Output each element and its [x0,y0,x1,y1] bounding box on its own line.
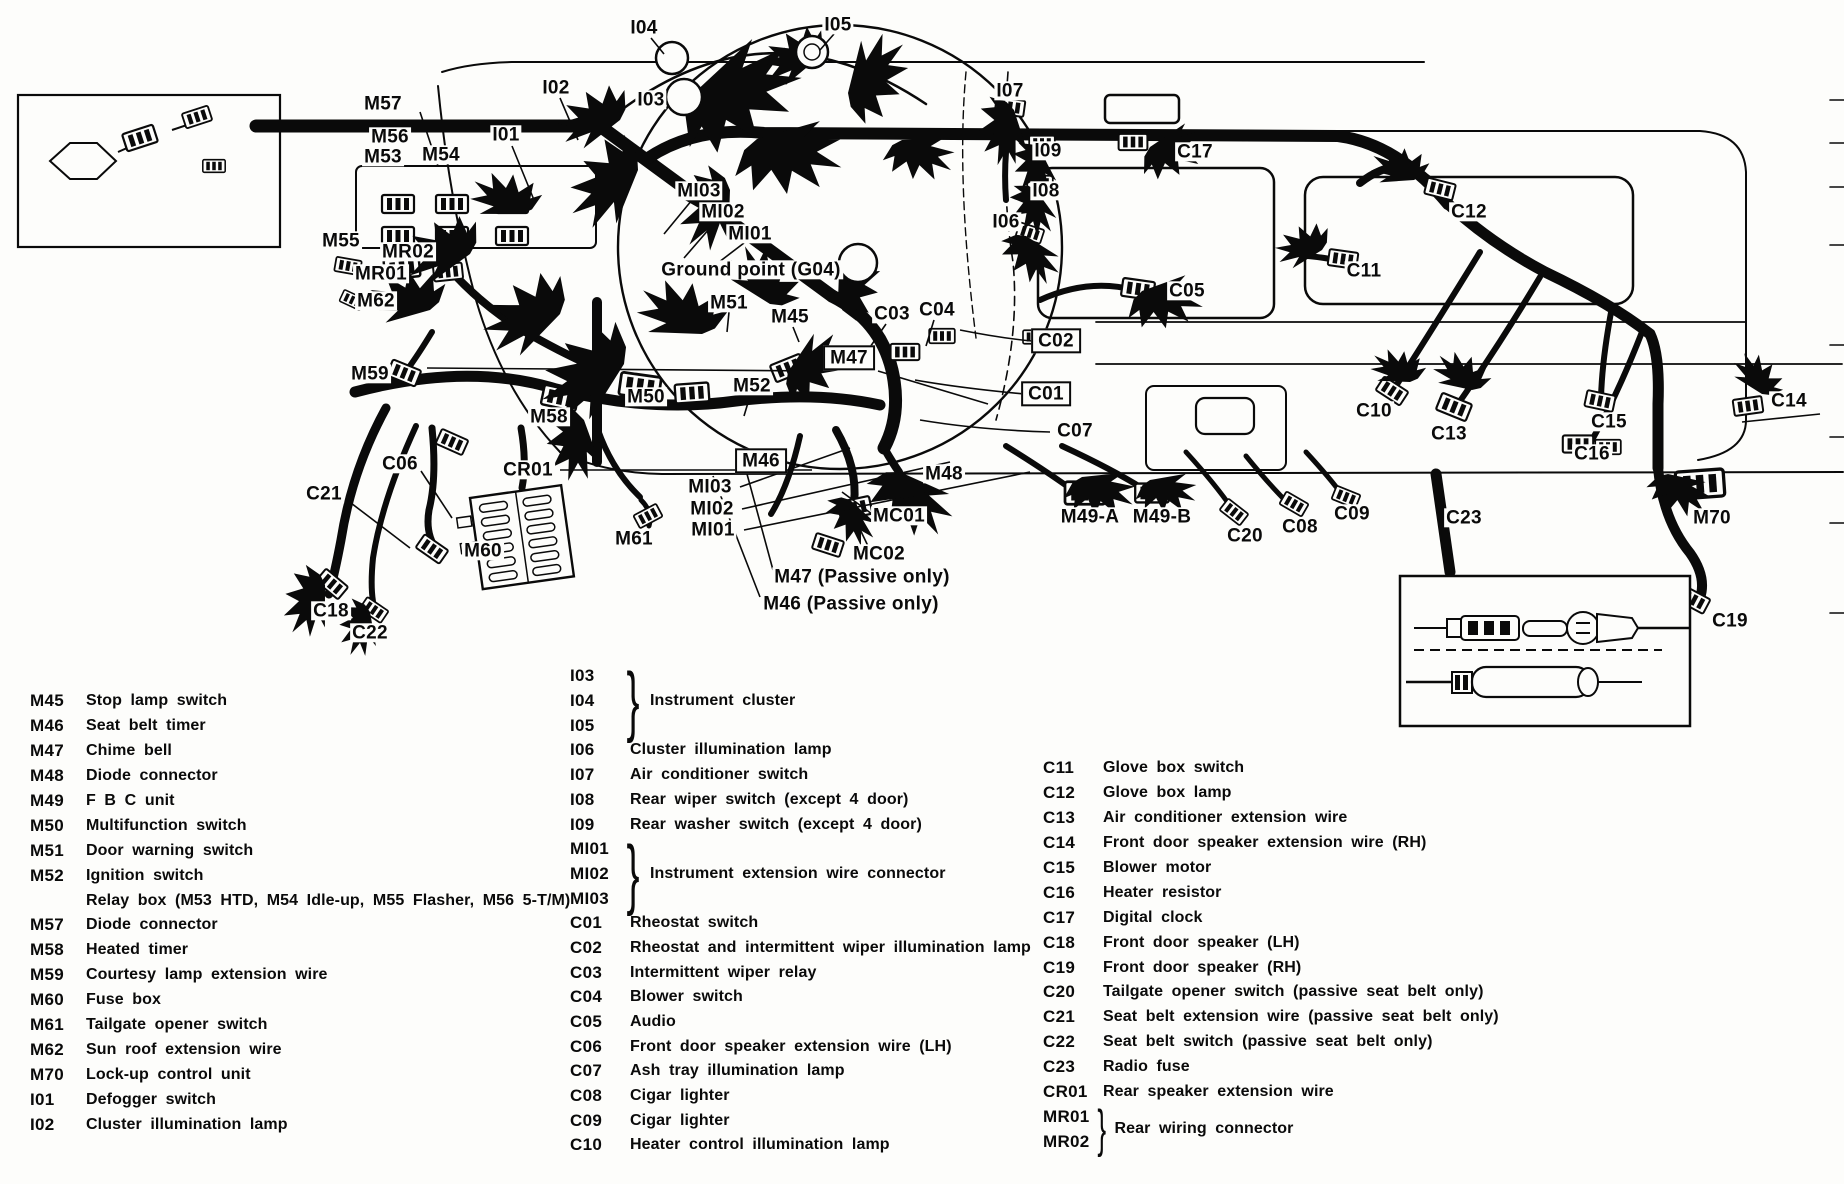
legend-row: C14Front door speaker extension wire (RH… [1043,831,1499,856]
legend-row: M58Heated timer [30,938,570,963]
diagram-label: M53 [362,147,404,166]
legend-row: C12Glove box lamp [1043,781,1499,806]
legend-row: C08Cigar lighter [570,1084,1031,1109]
legend-desc: Front door speaker extension wire (RH) [1103,834,1426,852]
legend-row: M49F B C unit [30,789,570,814]
legend-row: M47Chime bell [30,739,570,764]
legend-row: M57Diode connector [30,913,570,938]
legend-desc: Rear speaker extension wire [1103,1083,1334,1101]
legend-code: C04 [570,987,630,1007]
legend-desc: Courtesy lamp extension wire [86,966,328,984]
diagram-label: MI02 [688,499,735,518]
diagram-label: MR02 [380,242,436,261]
legend-desc: Rheostat and intermittent wiper illumina… [630,939,1031,957]
diagram-label: M62 [355,291,397,310]
legend-code: C01 [570,913,630,933]
diagram-label: C13 [1429,424,1469,443]
legend-desc: Blower motor [1103,859,1211,877]
diagram-label: M60 [462,541,504,560]
diagram-label: M54 [420,145,462,164]
legend-desc: Front door speaker (LH) [1103,934,1300,952]
legend-desc: Diode connector [86,916,218,934]
legend-code: M61 [30,1015,86,1035]
diagram-label: C05 [1167,281,1207,300]
diagram-label: M57 [362,94,404,113]
legend-code: M50 [30,816,86,836]
diagram-label: I01 [490,125,521,144]
legend-code: MR01 [1043,1104,1103,1129]
legend-row: C03Intermittent wiper relay [570,960,1031,985]
legend-row: CR01Rear speaker extension wire [1043,1080,1499,1105]
legend-desc: Rear wiring connector [1114,1120,1293,1138]
legend-desc: Ash tray illumination lamp [630,1062,845,1080]
legend-row: C22Seat belt switch (passive seat belt o… [1043,1030,1499,1055]
legend-row: M60Fuse box [30,988,570,1013]
legend-code: M45 [30,691,86,711]
diagram-label: C16 [1572,444,1612,463]
legend-code: C11 [1043,758,1103,778]
legend-code: I08 [570,790,630,810]
legend-row: Relay box (M53 HTD, M54 Idle-up, M55 Fla… [30,888,570,913]
legend-code: I06 [570,740,630,760]
legend-desc: Cluster illumination lamp [86,1116,288,1134]
diagram-label: M59 [349,364,391,383]
legend-row: C10Heater control illumination lamp [570,1133,1031,1158]
legend-code: C19 [1043,958,1103,978]
legend-desc: Digital clock [1103,909,1203,927]
legend-code: C12 [1043,783,1103,803]
diagram-label: M49-A [1059,507,1122,526]
diagram-label: C11 [1345,261,1384,280]
diagram-label: C06 [380,454,420,473]
legend-desc: Blower switch [630,988,743,1006]
legend-desc: Cigar lighter [630,1087,730,1105]
diagram-label: M56 [369,127,411,146]
legend-code: M62 [30,1040,86,1060]
legend-desc: Heated timer [86,941,188,959]
diagram-label: M49-B [1131,507,1194,526]
diagram-label: M55 [320,231,362,250]
legend-desc: Intermittent wiper relay [630,964,816,982]
legend-row: MI01MI02MI03}Instrument extension wire c… [570,837,1031,911]
legend-row: C11Glove box switch [1043,756,1499,781]
legend-brace: } [1097,1106,1106,1153]
legend-code: M58 [30,940,86,960]
legend-code: M59 [30,965,86,985]
legend-row: C02Rheostat and intermittent wiper illum… [570,936,1031,961]
legend-row: C19Front door speaker (RH) [1043,955,1499,980]
legend-left: M45Stop lamp switchM46Seat belt timerM47… [30,689,570,1137]
legend-code: CR01 [1043,1082,1103,1102]
diagram-label: I02 [540,78,571,97]
legend-desc: Ignition switch [86,867,204,885]
diagram-label: MC02 [851,544,907,563]
legend-code: C15 [1043,858,1103,878]
legend-row: C20Tailgate opener switch (passive seat … [1043,980,1499,1005]
legend-row: M62Sun roof extension wire [30,1037,570,1062]
diagram-label: I04 [628,18,659,37]
legend-desc: Lock-up control unit [86,1066,251,1084]
diagram-label: M52 [731,376,773,395]
diagram-label: MC01 [871,506,927,525]
diagram-label: C23 [1444,508,1484,527]
legend-desc: Rheostat switch [630,914,758,932]
legend-row: C23Radio fuse [1043,1055,1499,1080]
diagram-label: C08 [1280,517,1320,536]
diagram-label: C21 [304,484,344,503]
legend-row: M52Ignition switch [30,863,570,888]
diagram-label: C01 [1021,381,1071,406]
legend-row: M45Stop lamp switch [30,689,570,714]
diagram-label: MI03 [686,477,733,496]
diagram-label: C04 [917,300,957,319]
diagram-label: C12 [1449,202,1489,221]
legend-code: C08 [570,1086,630,1106]
diagram-label: M48 [923,464,965,483]
legend-code: I03 [570,664,630,689]
legend-desc: F B C unit [86,792,175,810]
legend-row: C07Ash tray illumination lamp [570,1059,1031,1084]
legend-desc: Air conditioner switch [630,766,808,784]
legend-code: I04 [570,689,630,714]
legend-row: C05Audio [570,1010,1031,1035]
diagram-label: C07 [1055,421,1095,440]
legend-code: C18 [1043,933,1103,953]
diagram-label: I07 [994,81,1025,100]
legend-desc: Seat belt timer [86,717,206,735]
legend-code: I01 [30,1090,86,1110]
legend-code: MR02 [1043,1129,1103,1154]
legend-row: M50Multifunction switch [30,813,570,838]
legend-desc: Chime bell [86,742,172,760]
legend-desc: Front door speaker (RH) [1103,959,1301,977]
legend-code: M48 [30,766,86,786]
legend-row: I01Defogger switch [30,1087,570,1112]
legend-desc: Radio fuse [1103,1058,1190,1076]
diagram-label: M61 [613,529,655,548]
legend-row: C16Heater resistor [1043,880,1499,905]
legend-desc: Heater resistor [1103,884,1221,902]
legend-desc: Rear wiper switch (except 4 door) [630,791,908,809]
diagram-label: I09 [1032,141,1063,160]
legend-row: M48Diode connector [30,764,570,789]
legend-row: I07Air conditioner switch [570,763,1031,788]
legend-row: M59Courtesy lamp extension wire [30,963,570,988]
legend-row: MR01MR02}Rear wiring connector [1043,1104,1499,1154]
legend-code: MI01 [570,837,630,862]
legend-code: M51 [30,841,86,861]
diagram-label: C02 [1031,328,1081,353]
legend-code: I09 [570,815,630,835]
legend-row: I03I04I05}Instrument cluster [570,664,1031,738]
legend-code: C03 [570,963,630,983]
legend-row: I02Cluster illumination lamp [30,1112,570,1137]
diagram-label: MI02 [699,202,746,221]
diagram-label: M47 (Passive only) [772,567,951,586]
legend-code: M52 [30,866,86,886]
legend-code: C16 [1043,883,1103,903]
diagram-label: MI01 [689,520,736,539]
legend-row: C09Cigar lighter [570,1108,1031,1133]
legend-code: I07 [570,765,630,785]
legend-row: C21Seat belt extension wire (passive sea… [1043,1005,1499,1030]
legend-code: C09 [570,1111,630,1131]
legend-desc: Cigar lighter [630,1112,730,1130]
legend-row: C06Front door speaker extension wire (LH… [570,1034,1031,1059]
legend-brace: } [626,666,639,736]
legend-desc: Rear washer switch (except 4 door) [630,816,922,834]
legend-code: C07 [570,1061,630,1081]
legend-code: C05 [570,1012,630,1032]
legend-desc: Multifunction switch [86,817,247,835]
diagram-label: MR01 [353,264,409,283]
legend-brace: } [626,839,639,909]
diagram-label: C14 [1769,391,1809,410]
legend-row: C17Digital clock [1043,905,1499,930]
legend-code: C13 [1043,808,1103,828]
legend-desc: Door warning switch [86,842,253,860]
legend-desc: Sun roof extension wire [86,1041,282,1059]
diagram-label: I08 [1030,181,1061,200]
legend-desc: Instrument cluster [650,692,795,710]
legend-desc: Heater control illumination lamp [630,1136,890,1154]
diagram-label: M45 [769,307,811,326]
legend-desc: Seat belt extension wire (passive seat b… [1103,1008,1499,1026]
legend-code: C23 [1043,1057,1103,1077]
diagram-label: C18 [311,601,351,620]
legend-code: C10 [570,1135,630,1155]
diagram-label: C20 [1225,526,1265,545]
legend-row: M70Lock-up control unit [30,1062,570,1087]
diagram-label: I03 [635,90,666,109]
legend-code: C02 [570,938,630,958]
legend-desc: Cluster illumination lamp [630,741,832,759]
diagram-label: M51 [708,293,750,312]
legend-desc: Air conditioner extension wire [1103,809,1347,827]
diagram-label: C03 [872,304,912,323]
legend-desc: Tailgate opener switch [86,1016,268,1034]
legend-code: C21 [1043,1007,1103,1027]
legend-code: M60 [30,990,86,1010]
diagram-label: C19 [1710,611,1750,630]
legend-code: M46 [30,716,86,736]
legend-code: MI02 [570,862,630,887]
wiring-diagram-page: M57M56M53M54M55MR02MR01M62M59M58C06CR01C… [0,0,1844,1184]
diagram-label: C09 [1332,504,1372,523]
legend-desc: Diode connector [86,767,218,785]
diagram-label: C17 [1175,142,1215,161]
diagram-label: M50 [625,387,667,406]
legend-row: C18Front door speaker (LH) [1043,930,1499,955]
legend-desc: Glove box switch [1103,759,1244,777]
diagram-label: C22 [350,623,390,642]
legend-middle: I03I04I05}Instrument clusterI06Cluster i… [570,664,1031,1158]
legend-code: C17 [1043,908,1103,928]
legend-row: M51Door warning switch [30,838,570,863]
legend-code: M49 [30,791,86,811]
legend-desc: Glove box lamp [1103,784,1232,802]
legend-desc: Stop lamp switch [86,692,227,710]
legend-desc: Audio [630,1013,676,1031]
diagram-label: I06 [990,212,1021,231]
legend-row: C13Air conditioner extension wire [1043,806,1499,831]
legend-desc: Seat belt switch (passive seat belt only… [1103,1033,1433,1051]
diagram-label: MI03 [675,181,722,200]
diagram-label: M46 (Passive only) [761,594,940,613]
diagram-label: CR01 [501,460,555,479]
diagram-label: Ground point (G04) [659,260,843,279]
legend-desc: Relay box (M53 HTD, M54 Idle-up, M55 Fla… [86,892,570,910]
legend-code: M70 [30,1065,86,1085]
legend-desc: Instrument extension wire connector [650,865,946,883]
legend-desc: Tailgate opener switch (passive seat bel… [1103,983,1484,1001]
legend-right: C11Glove box switchC12Glove box lampC13A… [1043,756,1499,1154]
diagram-label: M46 [735,448,787,473]
legend-code: M47 [30,741,86,761]
legend-row: M61Tailgate opener switch [30,1013,570,1038]
diagram-label: M47 [823,345,875,370]
diagram-label: MI01 [726,224,773,243]
legend-code: C14 [1043,833,1103,853]
legend-code: I02 [30,1115,86,1135]
legend-desc: Front door speaker extension wire (LH) [630,1038,952,1056]
legend-row: M46Seat belt timer [30,714,570,739]
legend-code: MI03 [570,886,630,911]
legend-code: C20 [1043,982,1103,1002]
diagram-label: M70 [1691,508,1733,527]
diagram-label: C10 [1354,401,1394,420]
legend-code: M57 [30,915,86,935]
diagram-label: I05 [822,15,853,34]
legend-code: C06 [570,1037,630,1057]
legend-code: C22 [1043,1032,1103,1052]
legend-row: C04Blower switch [570,985,1031,1010]
legend-row: I08Rear wiper switch (except 4 door) [570,787,1031,812]
legend-desc: Fuse box [86,991,161,1009]
legend-code: I05 [570,713,630,738]
legend-row: C15Blower motor [1043,856,1499,881]
diagram-label: C15 [1589,412,1629,431]
legend-desc: Defogger switch [86,1091,216,1109]
diagram-label: M58 [528,407,570,426]
